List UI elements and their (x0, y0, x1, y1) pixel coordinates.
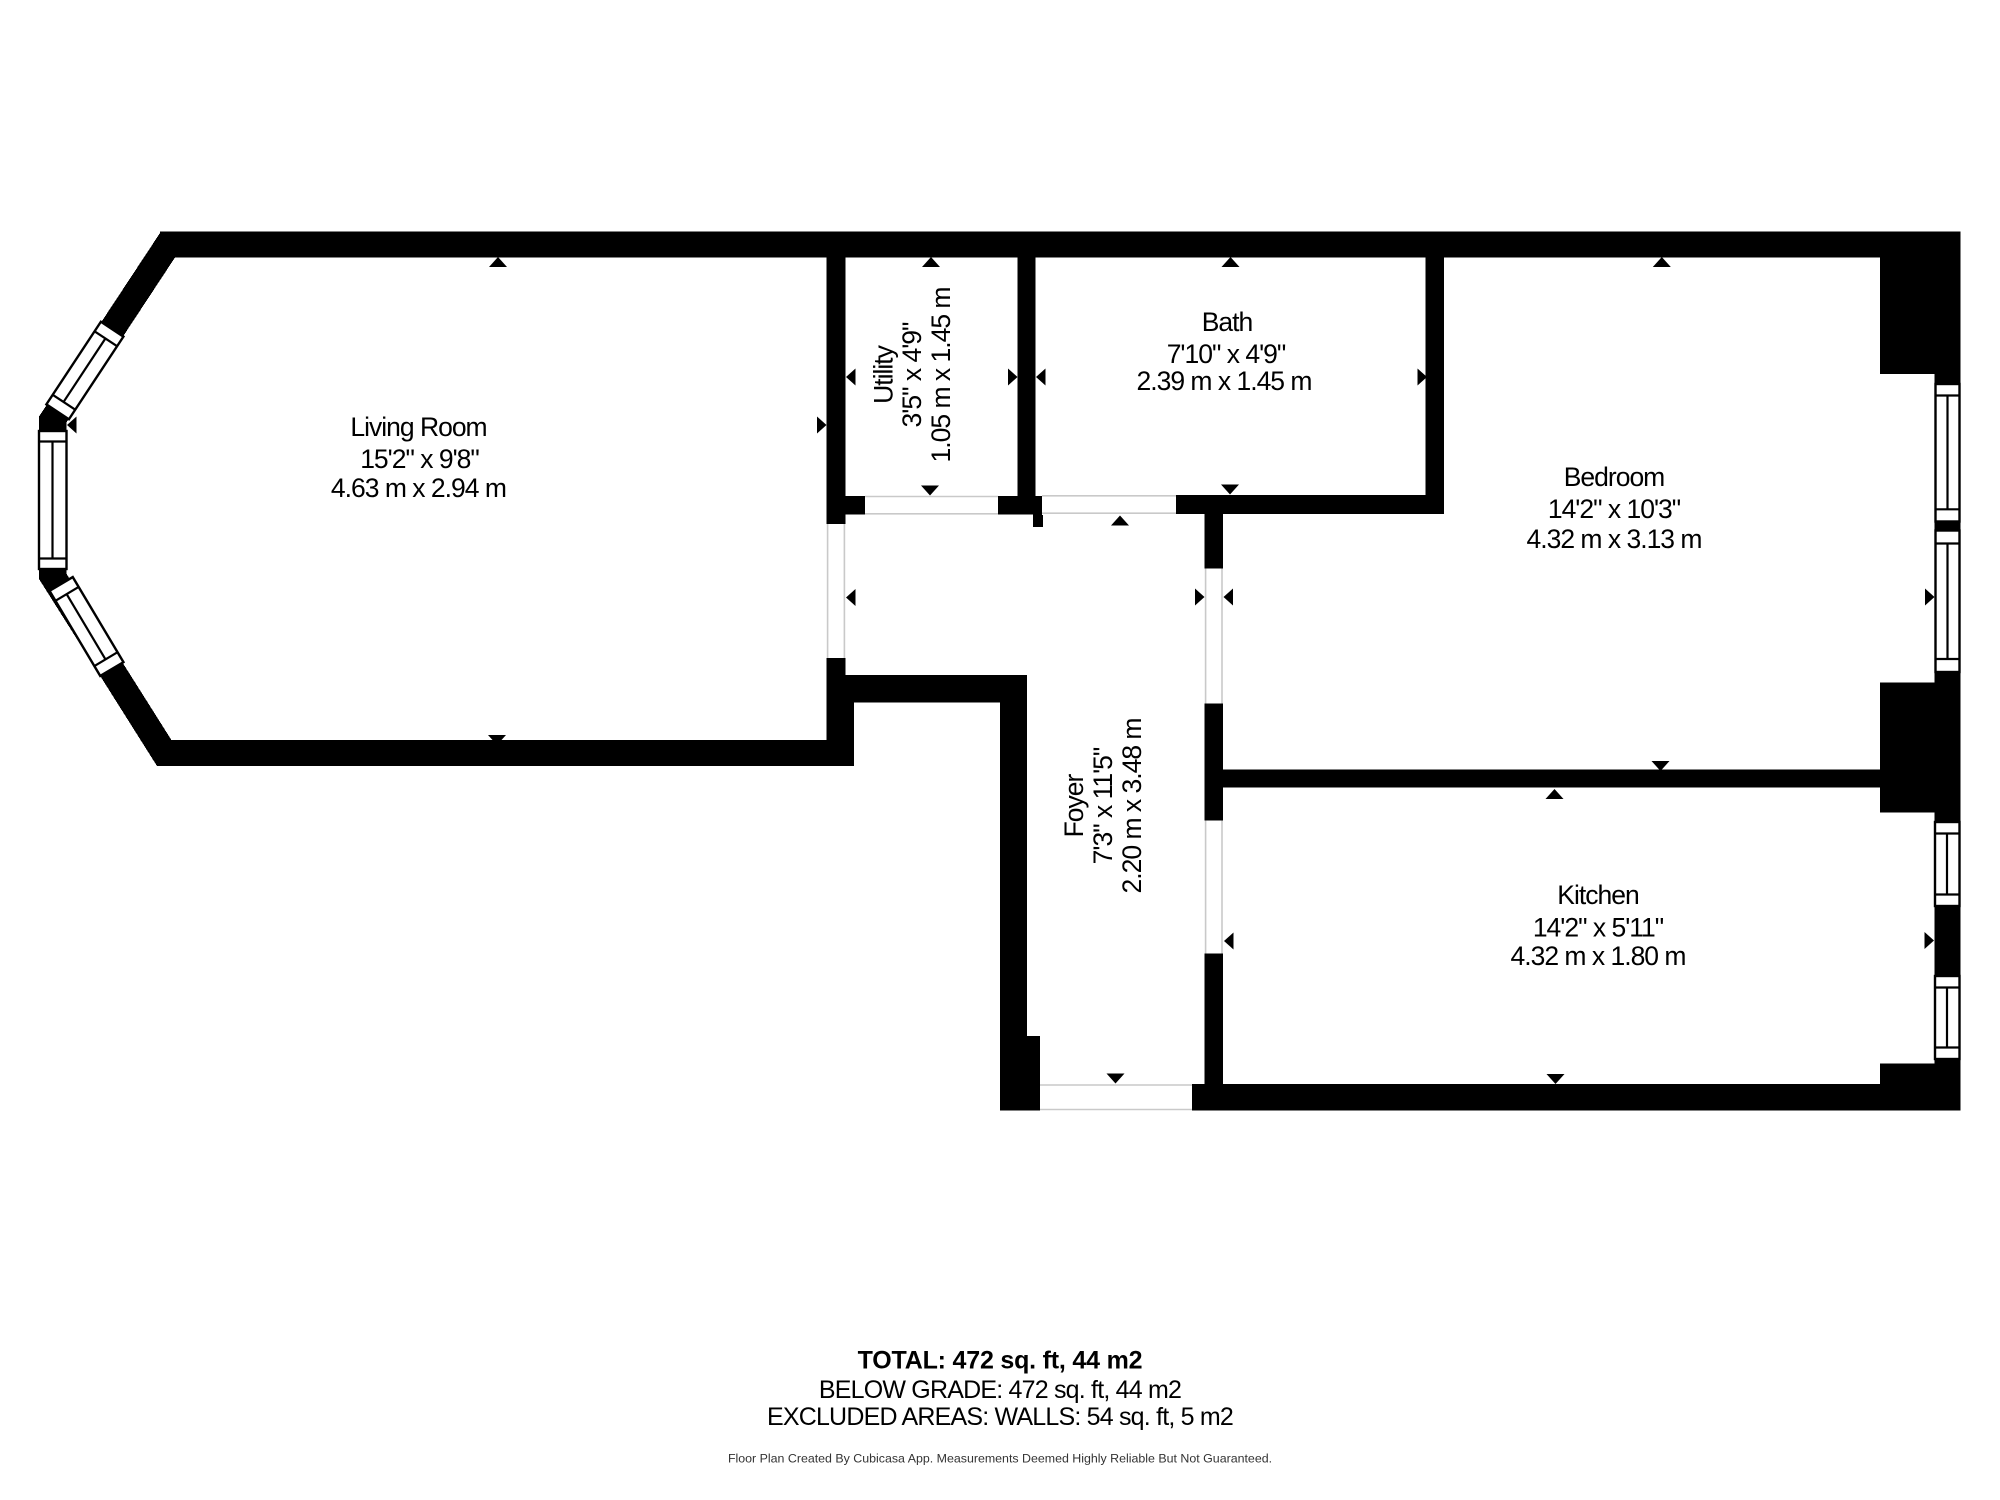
svg-text:4.63 m x 2.94 m: 4.63 m x 2.94 m (331, 473, 506, 503)
svg-text:4.32 m x 3.13 m: 4.32 m x 3.13 m (1526, 524, 1701, 554)
svg-text:1.05 m x 1.45 m: 1.05 m x 1.45 m (926, 287, 956, 462)
svg-text:Utility: Utility (869, 344, 899, 404)
svg-text:BELOW GRADE: 472 sq. ft, 44 m2: BELOW GRADE: 472 sq. ft, 44 m2 (819, 1376, 1181, 1404)
svg-text:TOTAL: 472 sq. ft, 44 m2: TOTAL: 472 sq. ft, 44 m2 (858, 1347, 1143, 1375)
svg-text:2.39 m x 1.45 m: 2.39 m x 1.45 m (1136, 366, 1311, 396)
svg-text:Foyer: Foyer (1059, 773, 1089, 837)
svg-text:Living Room: Living Room (350, 412, 486, 442)
svg-text:2.20 m x 3.48 m: 2.20 m x 3.48 m (1117, 718, 1147, 893)
svg-text:7'10" x 4'9": 7'10" x 4'9" (1167, 339, 1286, 369)
svg-text:14'2" x 10'3": 14'2" x 10'3" (1548, 494, 1681, 524)
svg-text:7'3" x 11'5": 7'3" x 11'5" (1088, 747, 1118, 864)
svg-text:15'2" x 9'8": 15'2" x 9'8" (360, 444, 479, 474)
svg-text:EXCLUDED AREAS: WALLS: 54 sq.: EXCLUDED AREAS: WALLS: 54 sq. ft, 5 m2 (767, 1403, 1233, 1431)
svg-text:Bath: Bath (1202, 307, 1253, 337)
svg-text:Kitchen: Kitchen (1557, 880, 1639, 910)
svg-text:Floor Plan Created By Cubicasa: Floor Plan Created By Cubicasa App. Meas… (728, 1452, 1272, 1466)
svg-text:14'2" x 5'11": 14'2" x 5'11" (1533, 913, 1664, 943)
svg-text:4.32 m x 1.80 m: 4.32 m x 1.80 m (1510, 941, 1685, 971)
svg-text:3'5" x 4'9": 3'5" x 4'9" (897, 322, 927, 427)
svg-text:Bedroom: Bedroom (1564, 462, 1665, 492)
